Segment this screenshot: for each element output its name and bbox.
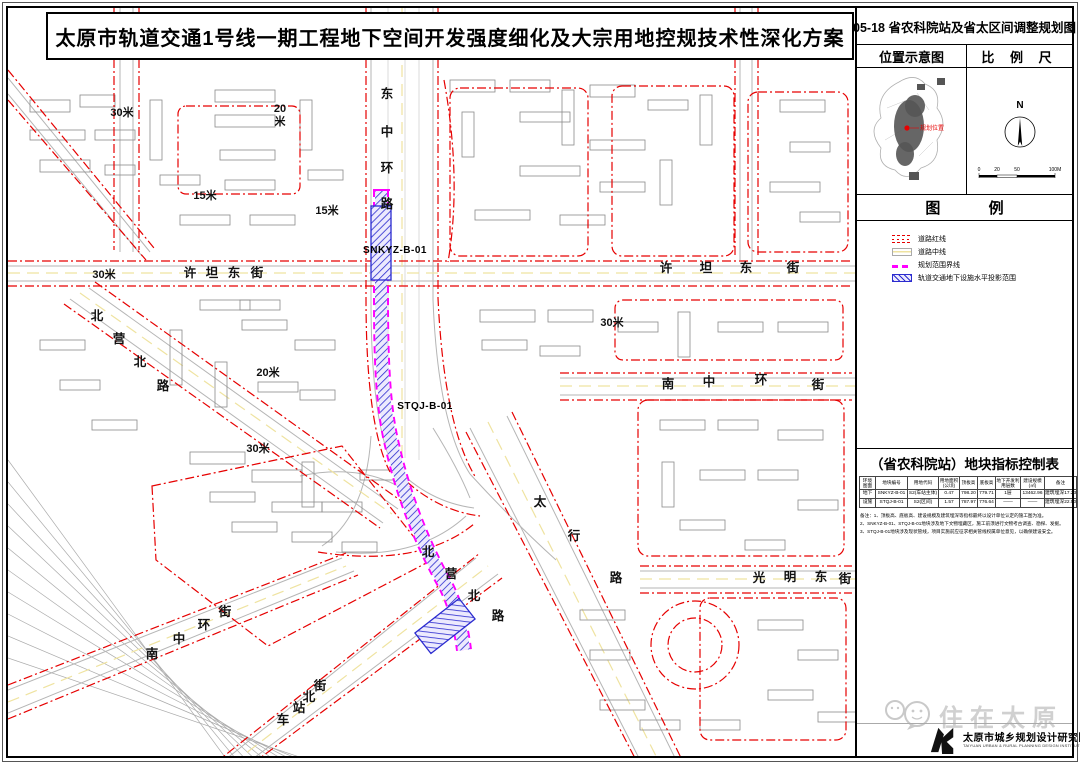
map-label: 街 xyxy=(218,604,232,619)
location-and-scale: 规划位置 N 0 20 50 100M xyxy=(857,68,1072,195)
table-cell: 1.57 xyxy=(939,499,960,508)
map-label: 北 xyxy=(91,308,104,323)
map-label: 北 xyxy=(468,588,481,603)
map-label: 营 xyxy=(445,566,458,581)
map-label: 中 xyxy=(703,374,716,389)
map-label: 车 xyxy=(277,712,290,727)
map-canvas: 东中环路许坦东街许坦东街北营北路南中环街太行路北营北路光明东街南中环街车站北街3… xyxy=(8,8,855,756)
control-table-wrap: 环境 图面地块编号用地代码用地面积 (公顷)顶板高底板高地下开发利 用层数建设规… xyxy=(857,476,1072,508)
map-label: 光 xyxy=(752,570,766,585)
drawing-number-title: 05-18 省农科院站及省太区间调整规划图 xyxy=(857,8,1072,45)
map-label: 30米 xyxy=(246,441,270,455)
map-label: 15米 xyxy=(193,188,217,202)
station-body-snkyz xyxy=(371,206,391,280)
map-label: 环 xyxy=(755,373,768,387)
map-label: 南 xyxy=(146,646,159,661)
map-label: 环 xyxy=(381,161,394,175)
legend-item: 轨道交通地下设施水平投影范围 xyxy=(892,274,1072,282)
compass-and-scalebar: N 0 20 50 100M xyxy=(967,68,1074,194)
table-cell: SNKYZ-B-01 xyxy=(876,490,908,499)
panel-footer: 住在太原 太原市城乡规划设计研究院 TAIYUAN URBAN & RURAL … xyxy=(857,696,1072,756)
legend-item-label: 道路中线 xyxy=(918,247,946,257)
compass-scalebar-svg: N 0 20 50 100M xyxy=(967,68,1074,195)
table-header-cell: 地下开发利 用层数 xyxy=(996,477,1021,490)
map-label: 路 xyxy=(492,608,505,623)
map-label: 街 xyxy=(313,678,327,693)
table-cell: 建筑埋深17.23米 xyxy=(1045,490,1077,499)
svg-text:50: 50 xyxy=(1014,167,1020,173)
map-label: 米 xyxy=(274,114,287,128)
map-label: 许 xyxy=(184,265,197,280)
legend-item: 规划范围界线 xyxy=(892,261,1072,269)
institute-name-cn: 太原市城乡规划设计研究院 xyxy=(963,729,1080,744)
map-label: 20 xyxy=(274,103,286,115)
svg-text:0: 0 xyxy=(978,167,981,173)
map-label: 东 xyxy=(815,569,828,584)
legend-item-label: 规划范围界线 xyxy=(918,260,960,270)
table-cell: 地下 xyxy=(860,490,876,499)
compass-north-label: N xyxy=(1016,100,1023,111)
map-label: 街 xyxy=(786,260,800,275)
table-cell: STQJ-B-01 xyxy=(876,499,908,508)
map-label: 东 xyxy=(740,260,753,275)
map-label: 路 xyxy=(381,196,394,211)
table-header-cell: 用地面积 (公顷) xyxy=(939,477,960,490)
map-label: 北 xyxy=(422,544,435,559)
map-label: 东 xyxy=(228,265,241,280)
map-label: 环 xyxy=(198,618,211,632)
watermark-text: 住在太原 xyxy=(939,698,1063,733)
rail-yard-lines xyxy=(8,460,320,756)
plan-location-dot xyxy=(904,125,909,130)
table-header-cell: 建设规模 (㎡) xyxy=(1021,477,1045,490)
scale-bar: 0 20 50 100M xyxy=(978,167,1062,178)
legend-swatch-metro xyxy=(892,274,912,282)
legend-swatch-centerline xyxy=(892,248,912,256)
table-cell: —— xyxy=(1021,499,1045,508)
plan-sheet: 东中环路许坦东街许坦东街北营北路南中环街太行路北营北路光明东街南中环街车站北街3… xyxy=(0,0,1080,764)
legend-item: 道路红线 xyxy=(892,235,1072,243)
map-label: 中 xyxy=(381,124,394,139)
table-cell: 建筑埋深22.50米 xyxy=(1045,499,1077,508)
sheet-title-box: 太原市轨道交通1号线一期工程地下空间开发强度细化及大宗用地控规技术性深化方案 xyxy=(46,12,854,60)
table-cell: 1层 xyxy=(996,490,1021,499)
legend-swatch-redline xyxy=(892,235,912,243)
table-cell: 设施 xyxy=(860,499,876,508)
map-label: 15米 xyxy=(315,203,339,217)
table-header-cell: 用地代码 xyxy=(908,477,939,490)
scale-label: 比 例 尺 xyxy=(967,45,1072,67)
map-label: 街 xyxy=(811,377,825,392)
svg-text:20: 20 xyxy=(994,167,1000,173)
table-notes: 备注：1、顶板高、底板高、建设规模及建筑埋深等指标最终以设计单位认定的施工图为准… xyxy=(857,510,1072,537)
table-note-line: 2、SNKYZ-B-01、STQJ-B-01地块涉及地下文物埋藏区，施工前须进行… xyxy=(860,520,1069,528)
institute-name-en: TAIYUAN URBAN & RURAL PLANNING DESIGN IN… xyxy=(963,743,1080,748)
map-label: 明 xyxy=(784,570,797,584)
sheet-title: 太原市轨道交通1号线一期工程地下空间开发强度细化及大宗用地控规技术性深化方案 xyxy=(55,22,844,51)
map-label: 路 xyxy=(157,378,170,393)
table-row: 地下SNKYZ-B-01S2(车站主体)0.47798.20779.711层13… xyxy=(860,490,1077,499)
map-label: STQJ-B-01 xyxy=(397,401,453,412)
map-label: 30米 xyxy=(600,315,624,329)
map-label: 30米 xyxy=(110,105,134,119)
metro-corridor xyxy=(371,190,475,653)
table-cell: 13462.96 xyxy=(1021,490,1045,499)
institute-logo xyxy=(929,726,957,754)
table-cell: 776.64 xyxy=(978,499,996,508)
plan-location-label: 规划位置 xyxy=(920,124,944,132)
wechat-bubbles-icon xyxy=(877,696,939,730)
table-row: 设施STQJ-B-01S2(区间)1.57787.97776.64————建筑埋… xyxy=(860,499,1077,508)
map-label: 街 xyxy=(250,265,264,280)
legend-swatch-boundary xyxy=(892,265,912,268)
city-location-map: 规划位置 xyxy=(857,68,967,195)
table-cell: S2(区间) xyxy=(908,499,939,508)
legend-item: 道路中线 xyxy=(892,248,1072,256)
svg-text:100M: 100M xyxy=(1049,167,1062,173)
map-label: SNKYZ-B-01 xyxy=(363,245,427,256)
map-label: 坦 xyxy=(700,261,713,275)
legend-list: 道路红线道路中线规划范围界线轨道交通地下设施水平投影范围 xyxy=(857,221,1072,445)
footer-divider xyxy=(857,723,1072,724)
map-label: 中 xyxy=(173,631,186,646)
legend-item-label: 轨道交通地下设施水平投影范围 xyxy=(918,273,1016,283)
location-diagram-label: 位置示意图 xyxy=(857,45,967,67)
legend-item-label: 道路红线 xyxy=(918,234,946,244)
location-diagram: 规划位置 xyxy=(857,68,967,194)
table-cell: 0.47 xyxy=(939,490,960,499)
table-header-cell: 环境 图面 xyxy=(860,477,876,490)
plot-index-control-table: 环境 图面地块编号用地代码用地面积 (公顷)顶板高底板高地下开发利 用层数建设规… xyxy=(859,476,1077,508)
table-header-cell: 顶板高 xyxy=(960,477,978,490)
table-cell: 787.97 xyxy=(960,499,978,508)
map-label: 30米 xyxy=(92,267,116,281)
map-label: 许 xyxy=(660,260,673,275)
map-label: 路 xyxy=(610,570,623,585)
table-header-cell: 备注 xyxy=(1045,477,1077,490)
map-label: 东 xyxy=(381,86,394,101)
panel-subheader: 位置示意图 比 例 尺 xyxy=(857,45,1072,68)
table-cell: 798.20 xyxy=(960,490,978,499)
map-label: 20米 xyxy=(256,365,280,379)
map-label: 太 xyxy=(534,494,547,509)
table-cell: 779.71 xyxy=(978,490,996,499)
table-header-cell: 地块编号 xyxy=(876,477,908,490)
map-label: 营 xyxy=(113,331,126,346)
map-label: 坦 xyxy=(206,266,219,280)
map-label: 南 xyxy=(662,376,675,391)
table-note-line: 3、STQJ-B-01地块涉及现状管线，项目实施前应征求相关管线权属单位意见，以… xyxy=(860,528,1069,536)
compass-icon xyxy=(1005,117,1035,147)
map-label: 北 xyxy=(134,354,147,369)
info-panel: 05-18 省农科院站及省太区间调整规划图 位置示意图 比 例 尺 规 xyxy=(855,8,1072,756)
map-labels: 东中环路许坦东街许坦东街北营北路南中环街太行路北营北路光明东街南中环街车站北街3… xyxy=(91,86,852,727)
table-note-line: 备注：1、顶板高、底板高、建设规模及建筑埋深等指标最终以设计单位认定的施工图为准… xyxy=(860,512,1069,520)
control-table-title: （省农科院站）地块指标控制表 xyxy=(857,448,1072,476)
legend-title: 图 例 xyxy=(857,195,1072,221)
table-header-cell: 底板高 xyxy=(978,477,996,490)
table-cell: S2(车站主体) xyxy=(908,490,939,499)
map-label: 街 xyxy=(838,571,852,586)
map-label: 行 xyxy=(567,528,581,543)
table-cell: —— xyxy=(996,499,1021,508)
